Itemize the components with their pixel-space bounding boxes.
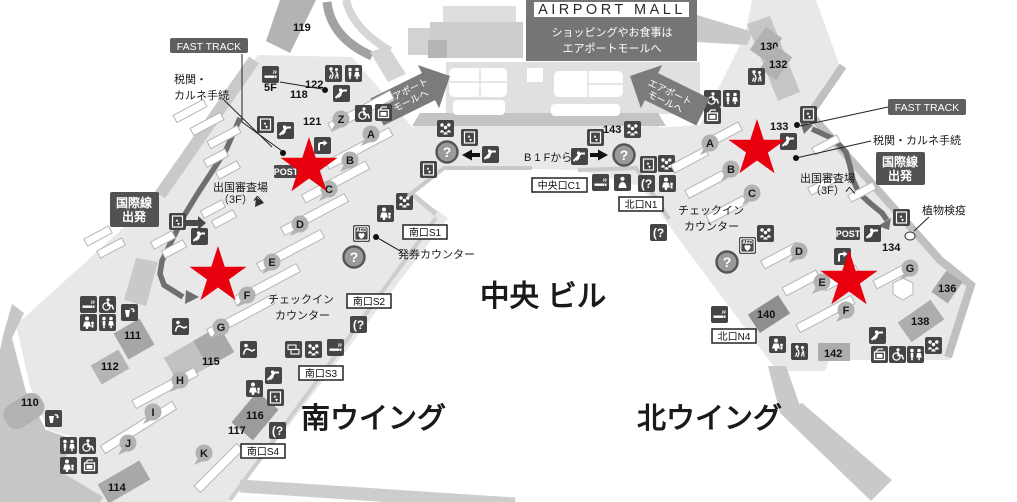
svg-text:J: J <box>125 438 131 450</box>
svg-text:北口N4: 北口N4 <box>718 331 751 343</box>
svg-text:中央 ビル: 中央 ビル <box>480 280 606 313</box>
svg-text:南ウイング: 南ウイング <box>301 402 446 435</box>
svg-text:134: 134 <box>882 242 901 254</box>
svg-text:5F: 5F <box>264 82 277 94</box>
svg-text:I: I <box>151 407 154 419</box>
svg-text:140: 140 <box>757 309 775 321</box>
svg-text:C: C <box>748 188 756 200</box>
svg-text:カウンター: カウンター <box>275 309 330 322</box>
svg-text:D: D <box>795 246 803 258</box>
svg-text:植物検疫: 植物検疫 <box>922 203 966 217</box>
svg-text:南口S4: 南口S4 <box>247 445 280 458</box>
svg-text:111: 111 <box>124 330 141 342</box>
svg-text:G: G <box>906 263 915 275</box>
svg-text:POST: POST <box>274 167 299 177</box>
svg-text:D: D <box>296 219 304 231</box>
svg-text:114: 114 <box>108 482 127 494</box>
svg-text:税関・カルネ手続: 税関・カルネ手続 <box>873 133 961 147</box>
svg-text:北口N1: 北口N1 <box>625 199 658 211</box>
svg-text:出国審査場: 出国審査場 <box>213 180 268 194</box>
svg-text:F: F <box>244 290 251 302</box>
svg-text:117: 117 <box>228 425 246 437</box>
svg-text:142: 142 <box>824 348 842 360</box>
svg-text:A: A <box>706 138 714 150</box>
svg-text:133: 133 <box>770 121 788 133</box>
svg-text:F: F <box>843 305 850 317</box>
svg-text:ショッピングやお食事は: ショッピングやお食事は <box>552 25 673 39</box>
svg-text:POST: POST <box>836 229 861 239</box>
svg-text:FAST TRACK: FAST TRACK <box>177 41 241 53</box>
svg-text:南口S2: 南口S2 <box>353 295 386 308</box>
svg-text:B: B <box>346 155 354 167</box>
svg-text:AIRPORT MALL: AIRPORT MALL <box>538 2 686 18</box>
svg-text:出国審査場: 出国審査場 <box>800 171 855 185</box>
svg-text:国際線: 国際線 <box>882 154 918 169</box>
svg-text:E: E <box>818 277 825 289</box>
svg-text:112: 112 <box>101 361 119 373</box>
svg-text:132: 132 <box>769 59 787 71</box>
svg-text:出発: 出発 <box>888 168 913 183</box>
svg-text:出発: 出発 <box>122 209 147 224</box>
svg-text:136: 136 <box>938 283 956 295</box>
svg-text:国際線: 国際線 <box>116 195 152 210</box>
svg-text:110: 110 <box>21 397 39 409</box>
svg-text:南口S1: 南口S1 <box>409 226 442 239</box>
svg-text:エアポートモールへ: エアポートモールへ <box>563 42 662 55</box>
svg-text:119: 119 <box>293 22 311 34</box>
svg-text:税関・: 税関・ <box>174 72 207 86</box>
svg-text:中央口C1: 中央口C1 <box>538 179 581 192</box>
svg-text:116: 116 <box>246 410 264 422</box>
svg-text:チェックイン: チェックイン <box>268 293 334 306</box>
svg-text:C: C <box>325 184 333 196</box>
svg-text:138: 138 <box>911 316 929 328</box>
svg-text:（3F）へ: （3F）へ <box>810 184 856 197</box>
svg-text:118: 118 <box>290 89 308 101</box>
svg-text:K: K <box>200 448 208 460</box>
svg-text:発券カウンター: 発券カウンター <box>398 247 475 261</box>
svg-text:カウンター: カウンター <box>684 220 739 233</box>
svg-text:G: G <box>217 322 226 334</box>
svg-text:B 1 Fから: B 1 Fから <box>524 151 572 164</box>
svg-text:B: B <box>727 164 735 176</box>
svg-text:チェックイン: チェックイン <box>678 204 744 217</box>
svg-text:A: A <box>367 129 375 141</box>
svg-text:E: E <box>268 257 275 269</box>
svg-text:121: 121 <box>303 116 321 128</box>
svg-text:H: H <box>176 375 184 387</box>
svg-text:北ウイング: 北ウイング <box>637 402 782 435</box>
svg-text:115: 115 <box>202 356 220 368</box>
svg-text:143: 143 <box>603 124 621 136</box>
svg-text:カルネ手続: カルネ手続 <box>174 88 229 102</box>
svg-text:南口S3: 南口S3 <box>305 367 338 380</box>
svg-text:Z: Z <box>338 114 345 126</box>
svg-text:FAST TRACK: FAST TRACK <box>895 102 959 114</box>
